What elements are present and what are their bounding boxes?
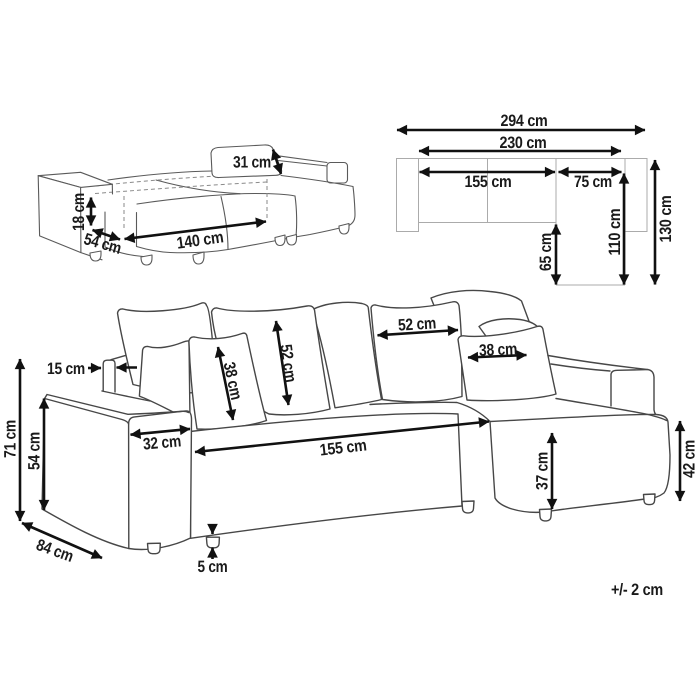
svg-text:110 cm: 110 cm [606, 209, 624, 256]
svg-text:31 cm: 31 cm [233, 154, 271, 172]
svg-text:130 cm: 130 cm [657, 196, 675, 243]
svg-text:32 cm: 32 cm [142, 432, 181, 453]
svg-text:15 cm: 15 cm [47, 360, 85, 378]
svg-text:5 cm: 5 cm [198, 558, 228, 576]
svg-text:65 cm: 65 cm [537, 233, 555, 271]
svg-text:52 cm: 52 cm [398, 314, 437, 334]
svg-text:155 cm: 155 cm [465, 173, 512, 191]
svg-text:71 cm: 71 cm [2, 420, 20, 458]
svg-text:54 cm: 54 cm [26, 432, 44, 470]
svg-text:75 cm: 75 cm [574, 173, 612, 191]
svg-text:294 cm: 294 cm [501, 112, 548, 130]
svg-text:230 cm: 230 cm [500, 134, 547, 152]
svg-text:38 cm: 38 cm [479, 340, 518, 360]
svg-text:42 cm: 42 cm [681, 440, 699, 478]
svg-text:37 cm: 37 cm [534, 452, 552, 490]
svg-text:+/- 2 cm: +/- 2 cm [611, 581, 663, 599]
svg-text:18 cm: 18 cm [70, 193, 88, 231]
